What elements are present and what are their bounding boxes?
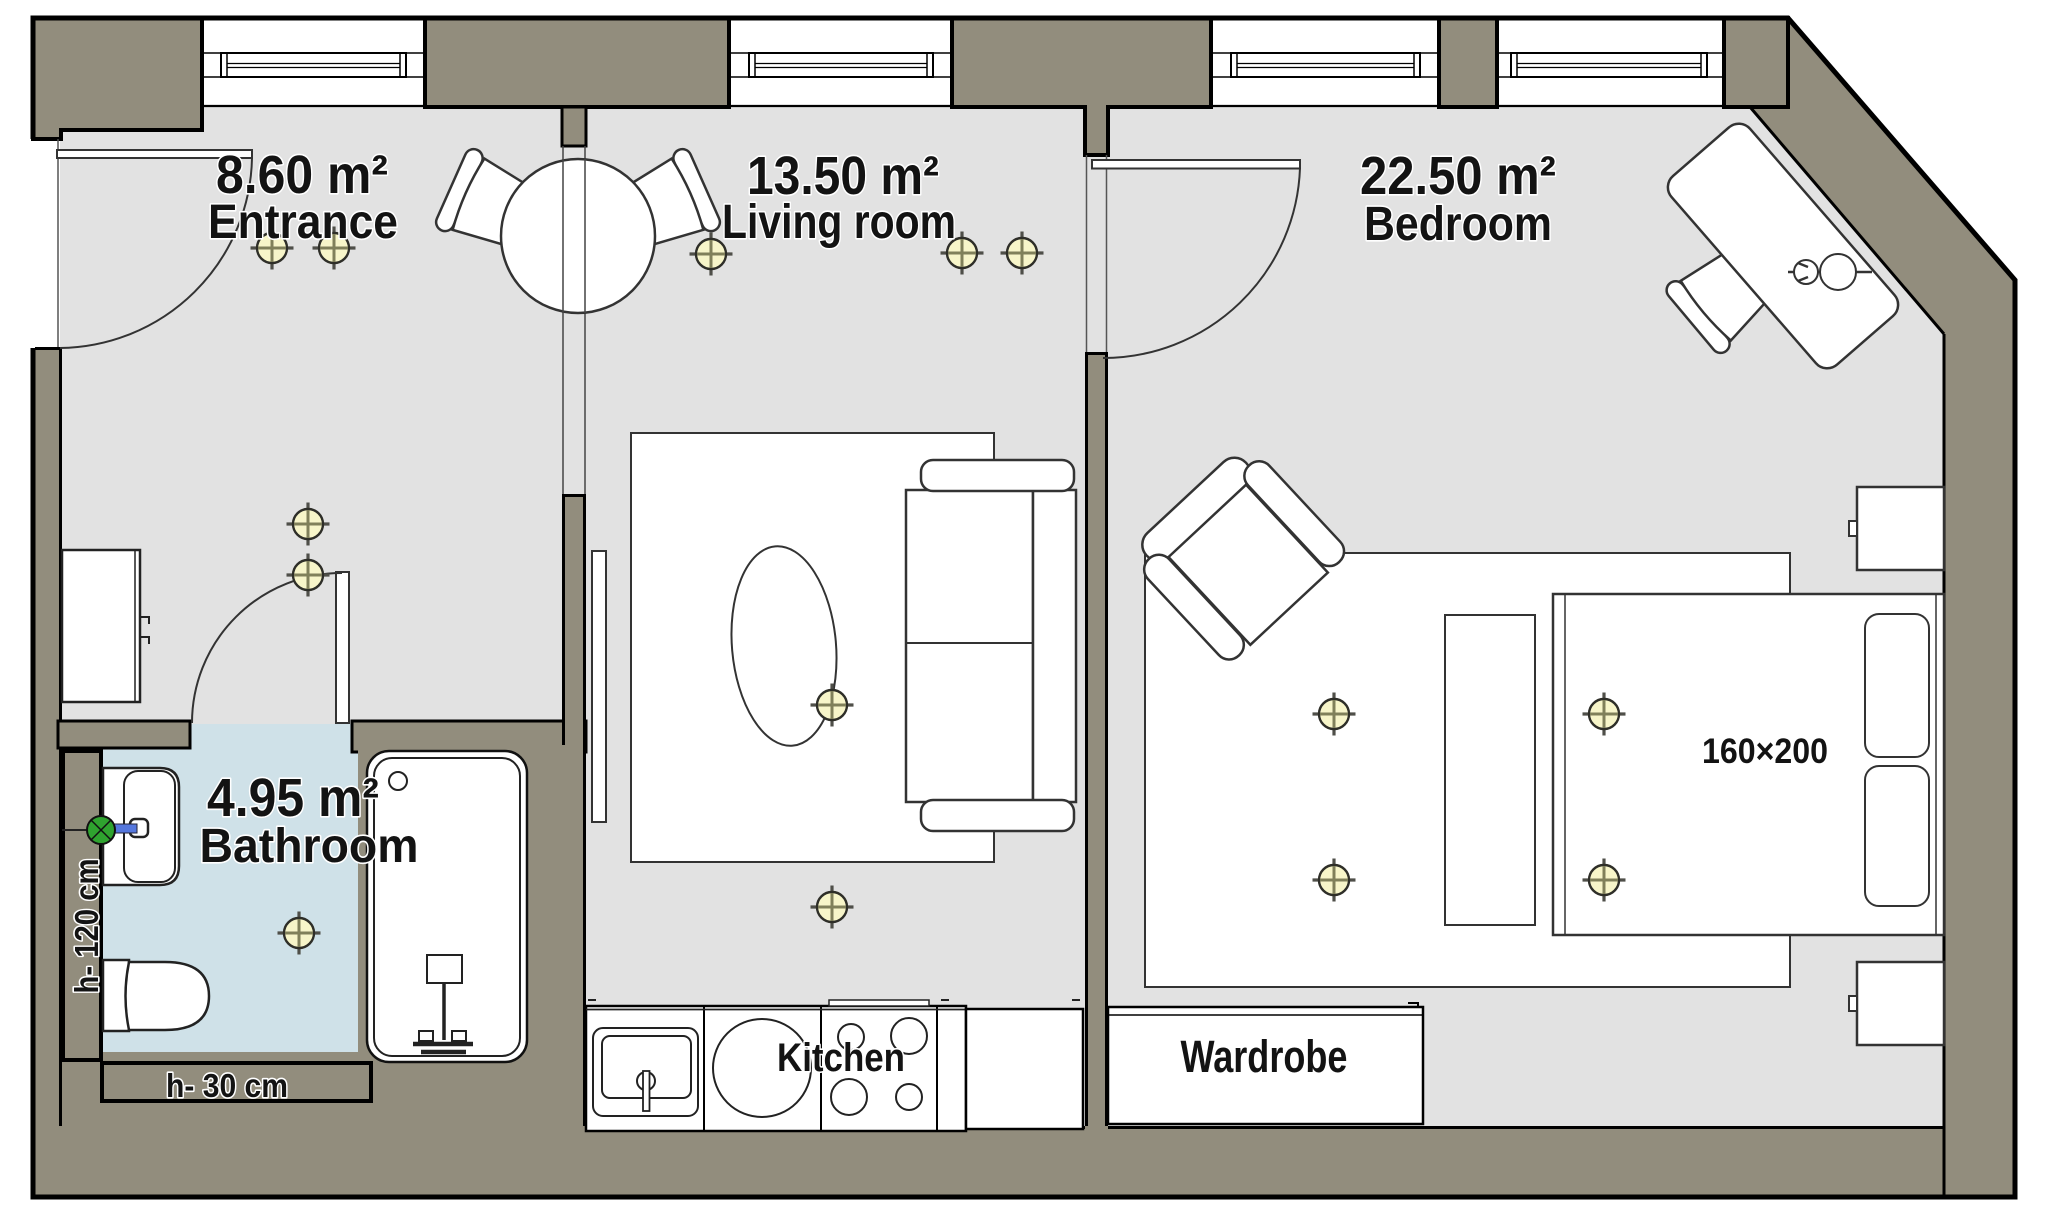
svg-text:4.95 m²: 4.95 m² (207, 768, 379, 828)
svg-text:Living room: Living room (722, 196, 956, 249)
svg-text:Entrance: Entrance (208, 196, 398, 249)
svg-text:Bedroom: Bedroom (1364, 198, 1552, 251)
svg-text:h- 120 cm: h- 120 cm (68, 859, 105, 994)
svg-text:h- 30 cm: h- 30 cm (166, 1067, 288, 1104)
svg-text:Bathroom: Bathroom (200, 820, 419, 873)
svg-text:160×200: 160×200 (1702, 732, 1828, 771)
svg-text:Wardrobe: Wardrobe (1181, 1031, 1348, 1082)
svg-text:Kitchen: Kitchen (777, 1036, 905, 1080)
svg-text:22.50 m²: 22.50 m² (1360, 146, 1556, 206)
